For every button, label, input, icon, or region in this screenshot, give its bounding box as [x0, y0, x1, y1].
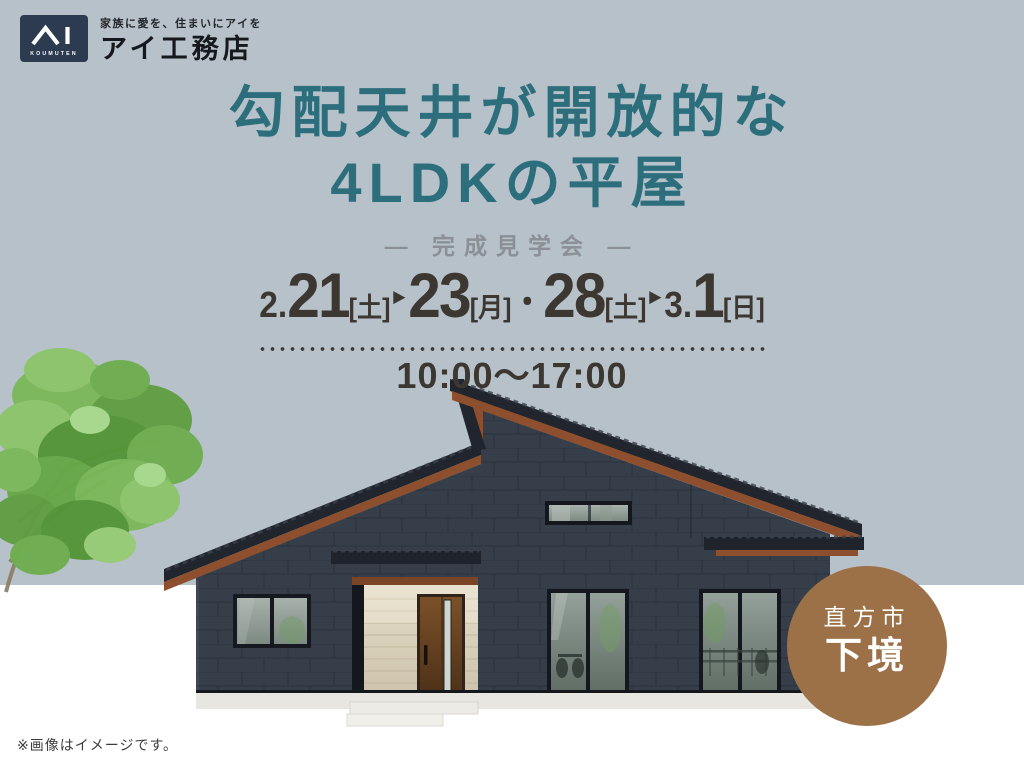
date-weekday-sat2: [土] — [605, 293, 647, 323]
date-day-21: 21 — [287, 261, 348, 331]
date-separator-dot: ・ — [512, 284, 544, 322]
date-month-1: 2. — [259, 284, 287, 325]
location-district: 下境 — [787, 634, 947, 678]
dotted-divider — [260, 346, 765, 352]
arrow-right-icon: ▶ — [649, 287, 661, 306]
main-title: 勾配天井が開放的な 4LDKの平屋 — [0, 80, 1024, 216]
company-name: アイ工務店 — [100, 33, 262, 65]
date-day-28: 28 — [543, 261, 604, 331]
event-dates: 2.21[土]▶23[月]・28[土]▶3.1[日] — [36, 264, 988, 345]
house-illustration — [164, 379, 864, 726]
arrow-right-icon: ▶ — [393, 287, 405, 306]
brand-tagline: 家族に愛を、住まいにアイを — [100, 17, 262, 31]
image-disclaimer-note: ※画像はイメージです。 — [17, 735, 178, 755]
event-poster: KOUMUTEN 家族に愛を、住まいにアイを アイ工務店 勾配天井が開放的な 4… — [0, 0, 1024, 768]
event-subtitle: — 完成見学会 — — [0, 227, 1024, 261]
entry-steps — [347, 702, 478, 726]
sliding-window-right — [699, 589, 781, 697]
sliding-window-left — [547, 589, 629, 697]
ai-koumuten-logo-mark: KOUMUTEN — [20, 15, 88, 62]
foundation — [196, 690, 830, 709]
date-day-1: 1 — [692, 261, 723, 331]
location-city: 直方市 — [787, 603, 947, 631]
date-weekday-sat: [土] — [349, 293, 391, 323]
right-eave — [704, 537, 864, 556]
logo-koumuten-caption: KOUMUTEN — [30, 51, 78, 57]
logo-text-block: 家族に愛を、住まいにアイを アイ工務店 — [100, 15, 262, 65]
left-window — [233, 594, 311, 648]
entry-door — [417, 594, 465, 695]
brand-header: KOUMUTEN 家族に愛を、住まいにアイを アイ工務店 — [20, 15, 262, 65]
event-schedule: 2.21[土]▶23[月]・28[土]▶3.1[日] 10:00〜17:00 — [0, 264, 1024, 396]
date-month-3: 3. — [664, 284, 692, 325]
entrance-eave — [331, 551, 481, 564]
transom-window — [545, 501, 632, 525]
date-weekday-mon: [月] — [470, 293, 512, 323]
date-weekday-sun: [日] — [723, 293, 765, 323]
title-line-1: 勾配天井が開放的な — [0, 80, 1024, 146]
event-time: 10:00〜17:00 — [0, 356, 1024, 396]
location-badge: 直方市 下境 — [787, 566, 947, 726]
date-day-23: 23 — [408, 261, 469, 331]
title-line-2: 4LDKの平屋 — [0, 150, 1024, 216]
